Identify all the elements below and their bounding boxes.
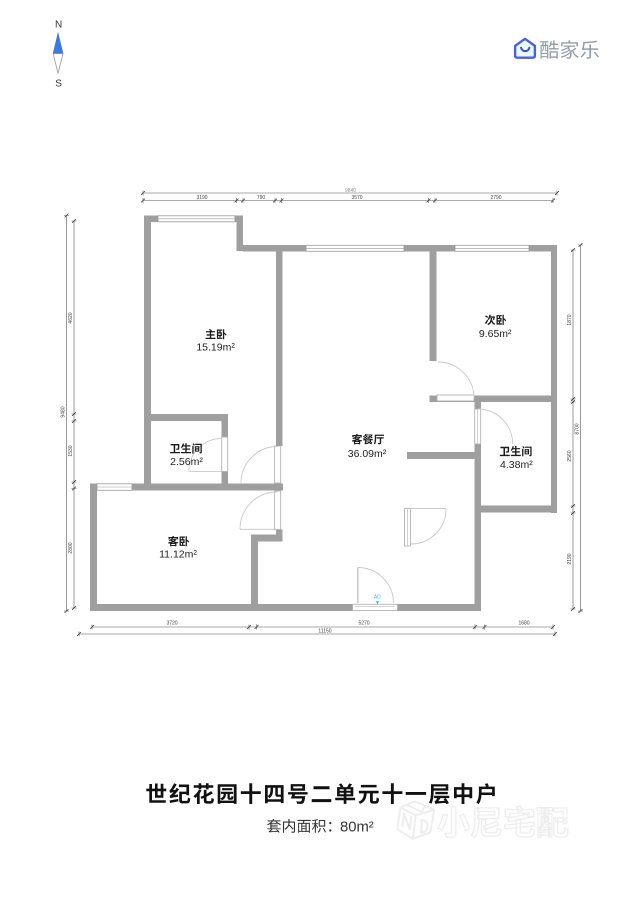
svg-text:15.19m²: 15.19m² bbox=[196, 342, 235, 354]
svg-text:4620: 4620 bbox=[68, 312, 74, 323]
svg-text:3570: 3570 bbox=[351, 195, 362, 201]
svg-text:3720: 3720 bbox=[166, 621, 177, 627]
svg-text:4.38m²: 4.38m² bbox=[500, 459, 533, 471]
svg-text:N: N bbox=[55, 20, 62, 31]
svg-text:2800: 2800 bbox=[68, 542, 74, 553]
svg-text:790: 790 bbox=[257, 195, 266, 201]
svg-text:1530: 1530 bbox=[68, 445, 74, 456]
svg-text:5270: 5270 bbox=[358, 621, 369, 627]
svg-text:S: S bbox=[55, 79, 62, 90]
svg-text:2.56m²: 2.56m² bbox=[170, 456, 203, 468]
svg-text:11150: 11150 bbox=[318, 629, 331, 635]
svg-text:8700: 8700 bbox=[575, 423, 581, 434]
svg-text:AD: AD bbox=[374, 595, 381, 601]
svg-text:1680: 1680 bbox=[518, 621, 529, 627]
svg-text:9.65m²: 9.65m² bbox=[479, 328, 512, 340]
svg-text:11.12m²: 11.12m² bbox=[159, 548, 197, 560]
svg-text:2560: 2560 bbox=[567, 450, 573, 461]
svg-text:80m²: 80m² bbox=[340, 820, 374, 836]
svg-text:36.09m²: 36.09m² bbox=[348, 448, 387, 460]
svg-text:9840: 9840 bbox=[345, 188, 356, 194]
svg-text:3190: 3190 bbox=[196, 195, 207, 201]
svg-text:9480: 9480 bbox=[61, 406, 67, 417]
svg-text:1870: 1870 bbox=[567, 314, 573, 325]
svg-text:2190: 2190 bbox=[567, 553, 573, 564]
svg-text:2790: 2790 bbox=[490, 195, 501, 201]
